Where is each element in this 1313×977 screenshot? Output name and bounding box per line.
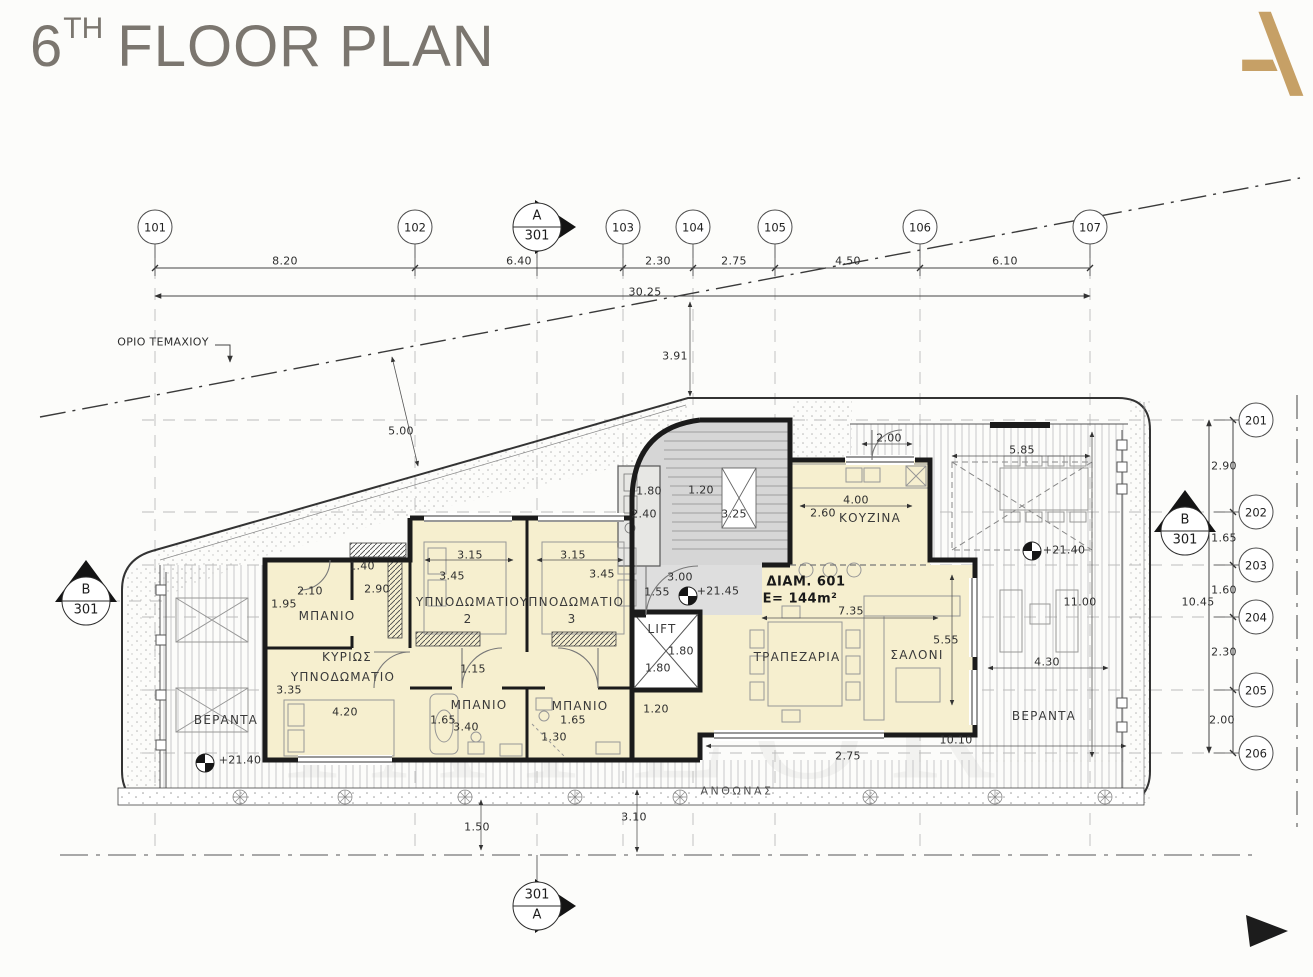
section-marker-B301-left: B301 xyxy=(36,551,136,651)
grid-bubble-107: 107 xyxy=(1073,210,1108,245)
grid-bubble-103: 103 xyxy=(606,210,641,245)
corner-arrow-icon xyxy=(1246,915,1288,947)
grid-bubble-105: 105 xyxy=(758,210,793,245)
floor-plan-drawing xyxy=(0,0,1313,977)
grid-bubble-102: 102 xyxy=(398,210,433,245)
grid-bubble-106: 106 xyxy=(903,210,938,245)
entry-landing xyxy=(632,565,762,615)
grid-bubble-104: 104 xyxy=(676,210,711,245)
grid-bubble-204: 204 xyxy=(1239,600,1274,635)
brand-logo-icon xyxy=(1223,6,1313,116)
grid-bubble-205: 205 xyxy=(1239,673,1274,708)
grid-bubble-203: 203 xyxy=(1239,548,1274,583)
section-marker-B301-right: B301 xyxy=(1135,481,1235,581)
grid-bubble-201: 201 xyxy=(1239,403,1274,438)
lift-shaft xyxy=(632,612,700,690)
floor-plan-sheet: TAYLOR xyxy=(0,0,1313,977)
section-marker-301A-bottom: 301A xyxy=(487,856,587,956)
planter-strip xyxy=(118,788,1144,805)
grid-bubble-101: 101 xyxy=(138,210,173,245)
section-marker-A301-top: A301 xyxy=(487,177,587,277)
grid-bubble-206: 206 xyxy=(1239,736,1274,771)
grid-bubble-202: 202 xyxy=(1239,495,1274,530)
page-title: 6THFLOOR PLAN xyxy=(30,12,495,80)
